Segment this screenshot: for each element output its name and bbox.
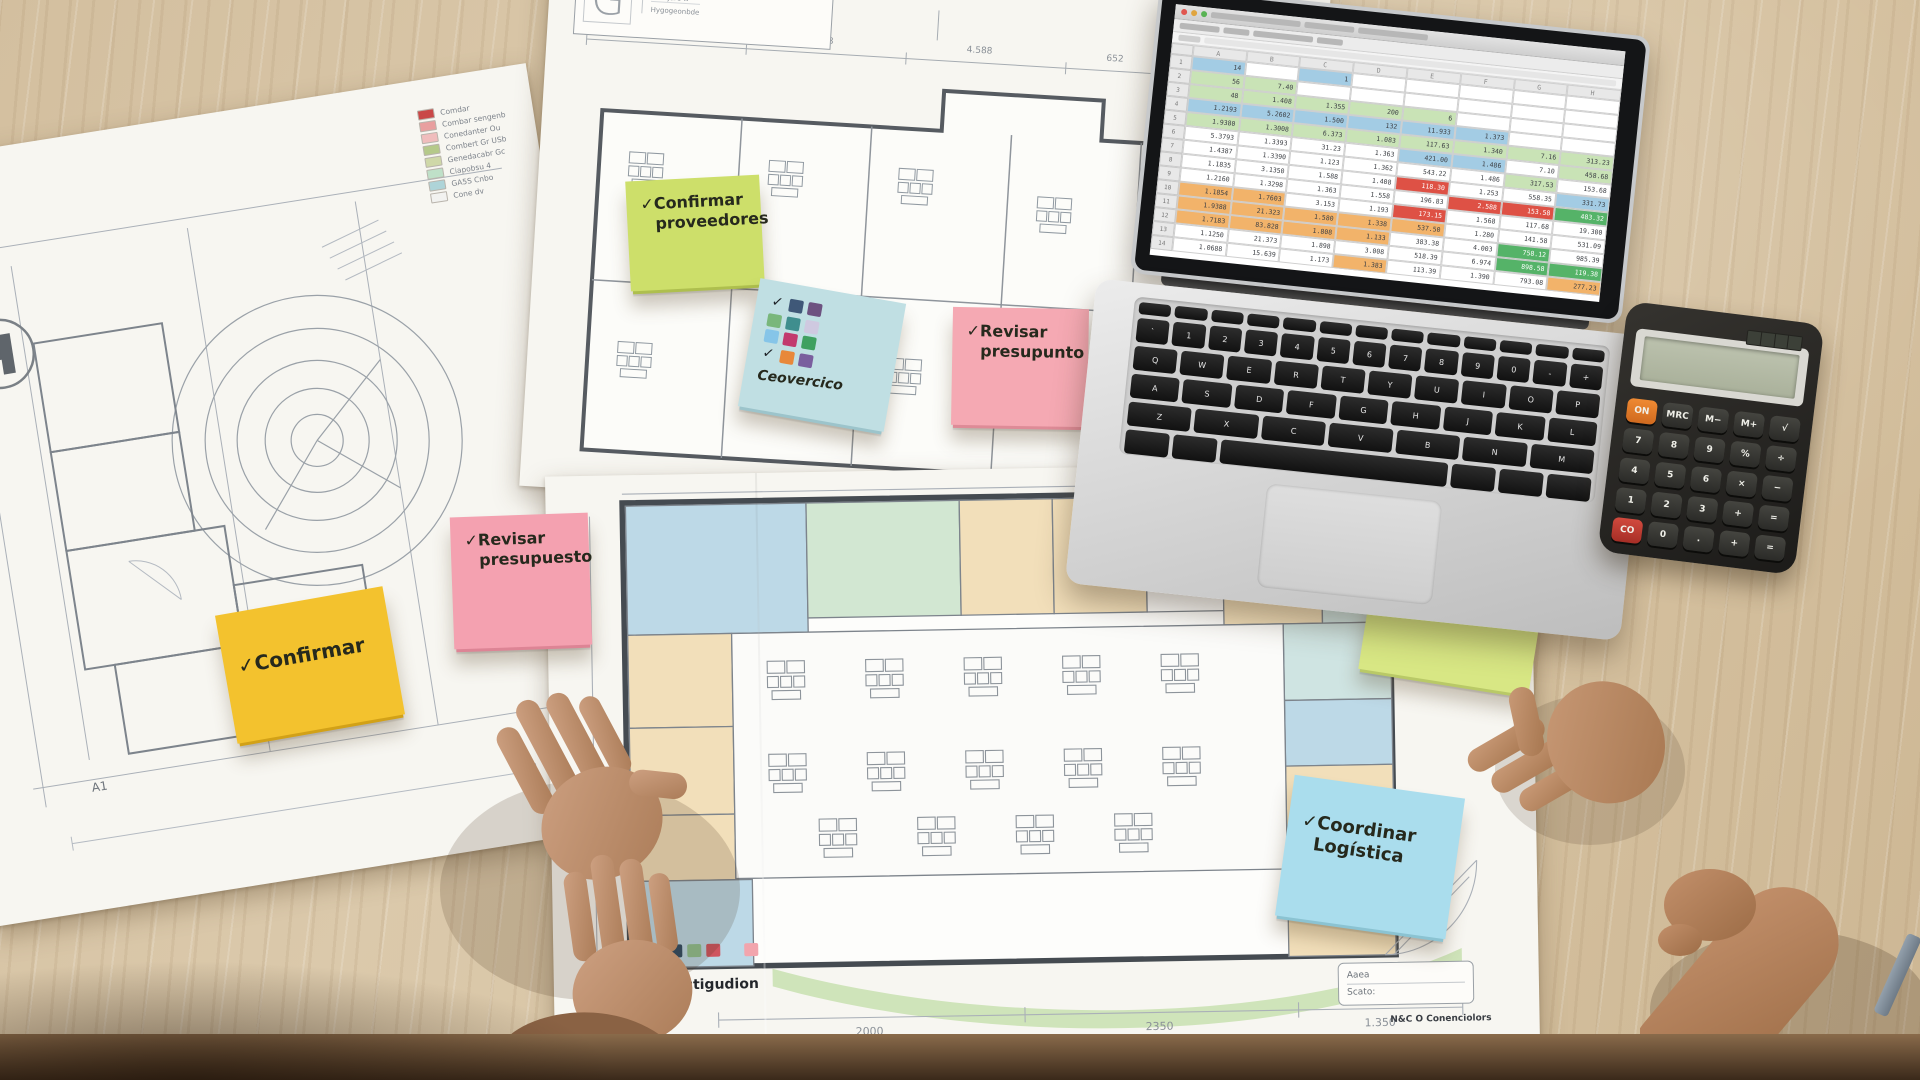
solar-panel <box>1746 330 1803 352</box>
note-text: ✓Revisar <box>966 321 1078 342</box>
function-key <box>1319 321 1352 336</box>
calculator: ONMRCM−M+√789%÷456×−123+=CO0.+= <box>1597 301 1824 575</box>
legend-swatch <box>424 156 442 169</box>
calculator-key-on: ON <box>1625 398 1658 425</box>
title-chip <box>1304 22 1354 33</box>
function-key <box>1247 313 1280 328</box>
check-mark: ✓ <box>769 293 786 312</box>
mid-title-line1: Cotejure w <box>651 0 700 4</box>
keyboard-key: Q <box>1132 346 1177 374</box>
color-swatch <box>801 335 817 350</box>
keyboard-key: D <box>1234 385 1285 414</box>
calculator-display-frame <box>1630 328 1810 407</box>
color-swatch <box>804 320 820 335</box>
left-plan-legend: ComdarCombar sengenbConedanter OuCombert… <box>416 95 517 205</box>
function-key <box>1572 348 1605 363</box>
keyboard-key: 8 <box>1424 348 1459 375</box>
desk-shadow <box>0 960 620 1080</box>
note-text: presupunto <box>980 341 1078 362</box>
note-text: presupuesto <box>479 546 580 569</box>
function-key <box>1174 306 1207 321</box>
keyboard-key: ` <box>1135 318 1170 345</box>
keyboard-key: O <box>1508 385 1553 413</box>
legend-swatch <box>419 120 437 133</box>
color-swatch <box>766 313 782 328</box>
scale-field: Scato: <box>1347 983 1465 1001</box>
legend-swatch <box>420 132 438 145</box>
function-key <box>1355 325 1388 340</box>
keyboard-key: 2 <box>1208 325 1243 352</box>
keyboard-key: - <box>1533 360 1568 387</box>
keyboard-key: L <box>1547 417 1598 446</box>
function-key <box>1536 344 1569 359</box>
zoom-icon <box>1201 11 1208 18</box>
keyboard-key: E <box>1226 356 1271 384</box>
keyboard-key: A <box>1130 374 1181 403</box>
modifier-key <box>1498 469 1544 497</box>
function-key <box>1499 340 1532 355</box>
keyboard-key: 0 <box>1497 356 1532 383</box>
calculator-key-8: 8 <box>1657 432 1690 459</box>
keyboard-key: F <box>1286 390 1337 419</box>
minimize-icon <box>1191 10 1198 17</box>
modifier-key <box>1545 474 1591 502</box>
laptop-screen: ABCDEFGH11412567.403481.4081.355200641.2… <box>1150 4 1626 302</box>
keyboard-key: + <box>1569 363 1604 390</box>
laptop: ABCDEFGH11412567.403481.4081.355200641.2… <box>1065 0 1683 641</box>
color-swatch <box>785 316 801 331</box>
keyboard-key: 7 <box>1388 344 1423 371</box>
laptop-lid: ABCDEFGH11412567.403481.4081.355200641.2… <box>1130 0 1652 324</box>
function-key <box>1427 332 1460 347</box>
keyboard-key: B <box>1395 430 1461 460</box>
laptop-screen-bezel: ABCDEFGH11412567.403481.4081.355200641.2… <box>1134 0 1647 320</box>
function-key <box>1391 329 1424 344</box>
svg-text:4.588: 4.588 <box>966 45 993 57</box>
legend-text: Cone dv <box>453 186 485 200</box>
calculator-key-−: − <box>1761 475 1794 502</box>
keyboard-key: Y <box>1367 370 1412 398</box>
calculator-key-√: √ <box>1768 415 1801 442</box>
keyboard-key: R <box>1273 361 1318 389</box>
keyboard-key: 1 <box>1172 322 1207 349</box>
function-key <box>1283 317 1316 332</box>
hand-right <box>1450 620 1700 870</box>
function-key <box>1463 336 1496 351</box>
keyboard-key: U <box>1414 375 1459 403</box>
sticky-note-revisar-presupuesto: ✓Revisar presupuesto <box>450 513 593 650</box>
keyboard-key: N <box>1462 437 1528 467</box>
name-box <box>1178 35 1201 43</box>
color-swatch <box>788 299 804 314</box>
calculator-key-=: = <box>1754 534 1787 561</box>
keyboard-key: 9 <box>1460 352 1495 379</box>
keyboard-key: C <box>1261 416 1327 446</box>
calculator-key-m−: M− <box>1697 406 1730 433</box>
trackpad <box>1256 483 1442 605</box>
legend-swatch <box>428 179 446 192</box>
color-swatch <box>782 332 798 347</box>
main-title-block: Aaea Scato: <box>1338 961 1475 1006</box>
keyboard-key: G <box>1338 396 1389 425</box>
logo-g: G <box>583 0 634 25</box>
modifier-key <box>1124 429 1170 457</box>
keyboard-key: X <box>1194 408 1260 438</box>
calculator-key-7: 7 <box>1622 427 1655 454</box>
calculator-key-mrc: MRC <box>1661 402 1694 429</box>
keyboard-key: V <box>1328 423 1394 453</box>
function-key <box>1211 310 1244 325</box>
calculator-key-%: % <box>1729 441 1762 468</box>
legend-swatch <box>417 108 435 121</box>
function-key <box>1138 302 1171 317</box>
keyboard-key: T <box>1320 365 1365 393</box>
legend-swatch <box>422 144 440 157</box>
color-swatch <box>798 353 814 368</box>
main-sheet-footer: N&C O Conenciolors <box>1390 1013 1491 1025</box>
keyboard-key: H <box>1390 401 1441 430</box>
calculator-keys: ONMRCM−M+√789%÷456×−123+=CO0.+= <box>1611 398 1801 562</box>
close-icon <box>1181 9 1188 16</box>
calculator-key-5: 5 <box>1654 462 1687 489</box>
calculator-key-co: CO <box>1611 517 1644 544</box>
keyboard-key: M <box>1529 444 1595 474</box>
laptop-keyboard: `1234567890-+QWERTYUIOPASDFGHJKLZXCVBNM <box>1119 296 1611 503</box>
toolbar-chip <box>1223 27 1249 36</box>
toolbar-chip <box>1317 37 1343 46</box>
check-mark: ✓ <box>760 345 777 364</box>
row-number: 14 <box>1150 235 1173 251</box>
area-field: Aaea <box>1347 966 1465 985</box>
calculator-key-3: 3 <box>1686 496 1719 523</box>
desk-scene: { "sticky_notes": [ {"id":"confirmar-pro… <box>0 0 1920 1080</box>
calculator-key-m+: M+ <box>1733 411 1766 438</box>
color-swatch <box>779 350 795 365</box>
legend-swatch <box>430 191 448 204</box>
sticky-note-revisar-presupunto: ✓Revisar presupunto <box>951 307 1089 427</box>
sticky-note-confirmar-proveedores: ✓Confirmar proveedores <box>625 175 765 292</box>
calculator-key-=: = <box>1757 504 1790 531</box>
keyboard-key: P <box>1555 390 1600 418</box>
legend-swatch <box>426 167 444 180</box>
keyboard-key: I <box>1461 380 1506 408</box>
calculator-key-+: + <box>1722 500 1755 527</box>
modifier-key <box>1450 464 1496 492</box>
calculator-key-.: . <box>1682 526 1715 553</box>
keyboard-key: 4 <box>1280 333 1315 360</box>
calculator-key-4: 4 <box>1618 457 1651 484</box>
calculator-key-1: 1 <box>1614 487 1647 514</box>
calculator-key-2: 2 <box>1650 491 1683 518</box>
sticky-note-coordinar-logistica: ✓Coordinar Logística <box>1275 775 1465 940</box>
left-plan-marker: A1 <box>91 779 109 795</box>
calculator-key-9: 9 <box>1693 436 1726 463</box>
keyboard-key: J <box>1443 406 1494 435</box>
svg-text:2350: 2350 <box>1146 1020 1174 1033</box>
keyboard-key: W <box>1179 351 1224 379</box>
keyboard-key: 3 <box>1244 329 1279 356</box>
calculator-key-×: × <box>1725 470 1758 497</box>
calculator-key-0: 0 <box>1646 521 1679 548</box>
toolbar-chip <box>1179 23 1219 33</box>
keyboard-key: 6 <box>1352 341 1387 368</box>
color-swatch <box>763 329 779 344</box>
modifier-key <box>1171 434 1217 462</box>
sticky-note-paleta: ✓✓ Ceovercico <box>738 278 906 432</box>
keyboard-key: S <box>1182 379 1233 408</box>
color-swatch <box>807 302 823 317</box>
mid-title-line2: Hygogeonbde <box>650 5 699 16</box>
keyboard-key: K <box>1495 412 1546 441</box>
calculator-key-+: + <box>1718 530 1751 557</box>
calculator-key-÷: ÷ <box>1765 445 1798 472</box>
laptop-deck: `1234567890-+QWERTYUIOPASDFGHJKLZXCVBNM <box>1065 278 1652 641</box>
keyboard-key: 5 <box>1316 337 1351 364</box>
calculator-key-6: 6 <box>1690 466 1723 493</box>
keyboard-key: Z <box>1127 401 1193 431</box>
